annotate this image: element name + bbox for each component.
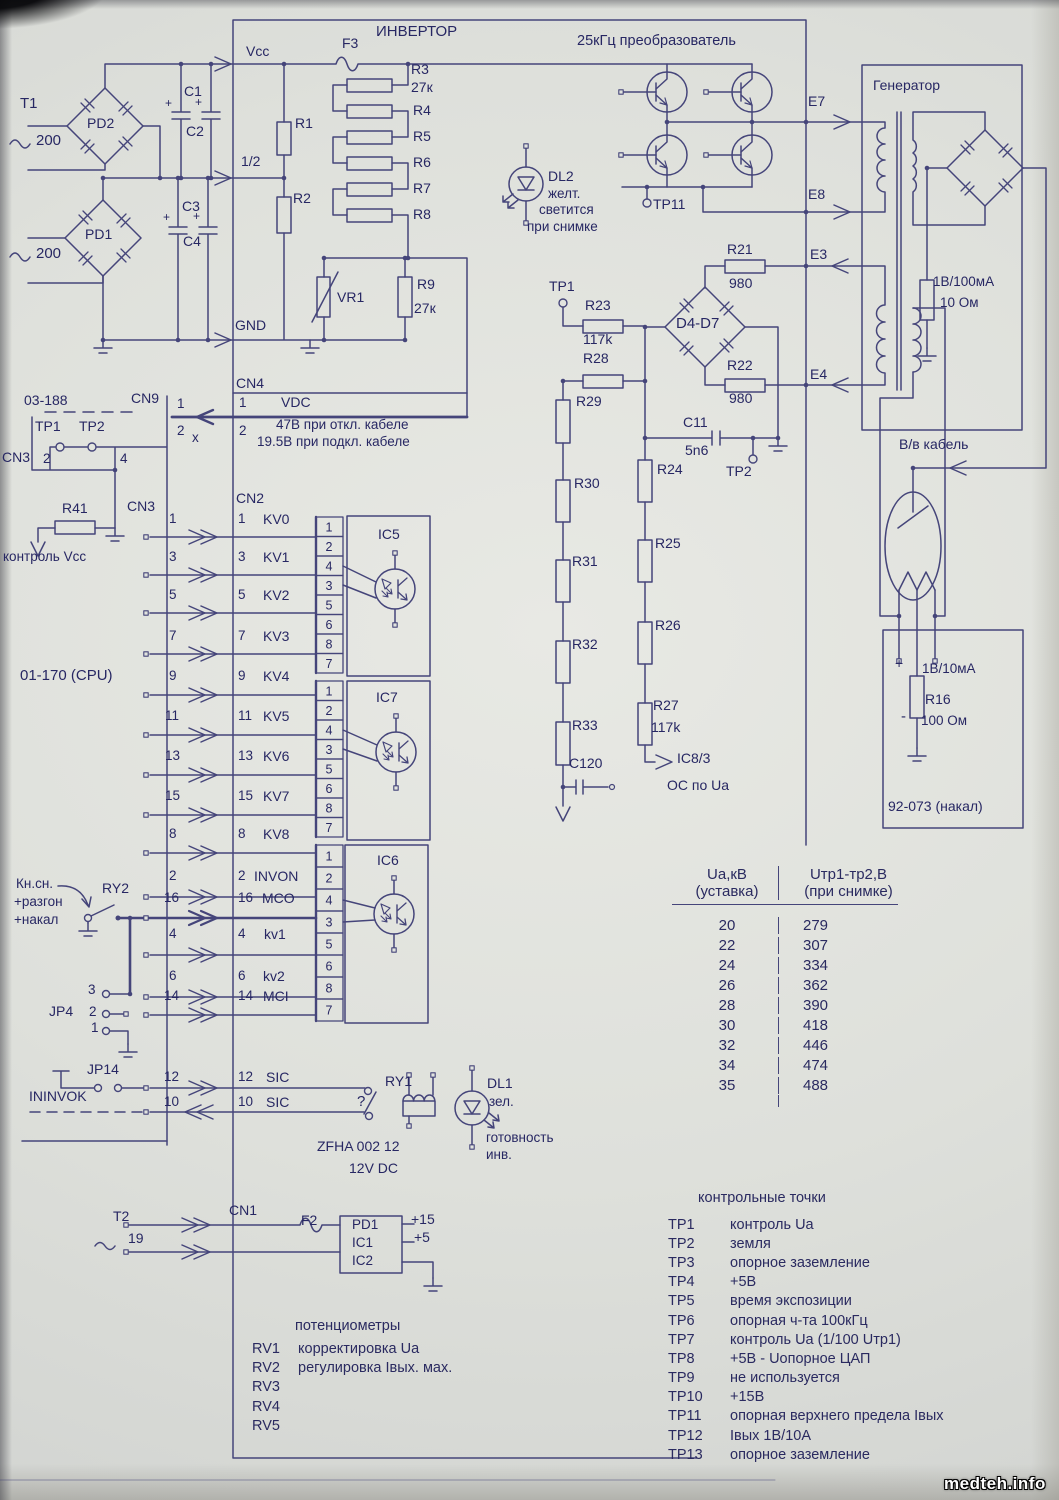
opto-pin-number: 5 [326,598,333,612]
opto-pin-number: 2 [326,540,333,554]
tube-minus: - [901,709,906,724]
signal-kv5: KV5 [263,709,289,723]
utr-col-header: Uтр1-тр2,В(при снимке) [778,866,918,900]
potentiometer-row: RV1корректировка Ua [252,1339,562,1358]
test-point-id: TP6 [668,1313,730,1329]
ry2-label: RY2 [102,881,129,895]
cpu-pin: 13 [165,749,180,763]
board-03-188: 03-188 [24,393,68,407]
potentiometer-id: RV4 [252,1399,298,1415]
opto-pin-number: 6 [326,960,333,974]
potentiometer-desc: корректировка Ua [298,1341,419,1357]
test-point-desc: +5В - Uопорное ЦАП [730,1351,870,1367]
ua-value: 35 [676,1077,778,1094]
dl1-note-1: готовность [486,1131,553,1145]
r29-label: R29 [576,394,602,408]
cn2-pin: 2 [238,869,246,883]
opto-pin-number: 1 [326,684,333,698]
opto-pin-number: 4 [326,723,333,737]
test-point-desc: +15В [730,1389,764,1405]
c120-label: C120 [569,756,602,770]
test-point-row: TP12Iвых 1В/10А [668,1426,1059,1445]
ua-value: 32 [676,1037,778,1054]
psu-ic1: IC1 [352,1236,373,1250]
dl2-label: DL2 [548,169,574,183]
cn3-pin2: 2 [43,452,51,466]
r23-value: 117k [583,332,612,346]
cpu-pin: 12 [164,1070,179,1084]
cn3-label: CN3 [2,450,30,464]
potentiometer-row: RV5 [252,1417,562,1436]
cpu-label: 01-170 (CPU) [20,668,113,683]
r21-label: R21 [727,242,753,256]
test-point-desc: контроль Ua (1/100 Uтр1) [730,1332,901,1348]
utr-value: 418 [778,1017,918,1034]
r27-label: R27 [653,698,679,712]
test-point-row: TP7контроль Ua (1/100 Uтр1) [668,1330,1059,1349]
inverter-title: ИНВЕРТОР [376,24,457,39]
c4-label: C4 [183,234,201,248]
converter-title: 25кГц преобразователь [577,34,736,49]
cn3-pin4: 4 [120,452,128,466]
e4-label: E4 [810,367,827,381]
test-points-title: контрольные точки [698,1190,1059,1206]
cpu-pin: 9 [169,669,177,683]
psu-ic2: IC2 [352,1254,373,1268]
potentiometer-desc: регулировка Iвых. мах. [298,1360,452,1376]
test-point-row: TP6опорная ч-та 100кГц [668,1311,1059,1330]
e7-label: E7 [808,94,825,108]
cn2-pin: 11 [238,709,252,723]
test-point-desc: +5В [730,1274,756,1290]
gen-shunt-value: 1В/100мА [933,275,994,289]
ic6-label: IC6 [377,853,399,867]
r27-value: 117k [651,720,680,734]
test-point-row: TP4+5В [668,1273,1059,1292]
utr-value: 307 [778,937,918,954]
cpu-pin: 5 [169,588,177,602]
ua-table-row: 34474 [676,1055,918,1075]
r41-label: R41 [62,501,88,515]
cn2-pin: 10 [238,1095,253,1109]
opto-pin-number: 5 [326,762,333,776]
potentiometer-id: RV5 [252,1418,298,1434]
e3-label: E3 [810,247,827,261]
ua-value: 28 [676,997,778,1014]
potentiometer-row: RV3 [252,1378,562,1397]
potentiometer-id: RV1 [252,1341,298,1357]
c2-plus: + [195,96,202,108]
test-point-row: TP8+5В - Uопорное ЦАП [668,1349,1059,1368]
cn2-pin: 3 [238,550,246,564]
test-point-id: TP12 [668,1428,730,1444]
opto-pin-number: 8 [326,982,333,996]
ry1-label: RY1 [385,1074,412,1088]
pd1-label: PD1 [85,227,112,241]
tp1-left-label: TP1 [35,419,61,433]
table-rule [672,904,898,905]
ua-table-row: 32446 [676,1035,918,1055]
c4-plus: + [193,210,200,222]
signal-kv8: KV8 [263,827,289,841]
ry1-question: ? [357,1094,365,1109]
potentiometers-legend: потенциометры RV1корректировка UaRV2регу… [252,1318,562,1436]
opto-pin-number: 2 [326,872,333,886]
cn2-pin: 4 [238,927,246,941]
c1-plus: + [165,97,172,109]
relay-voltage: 12V DC [349,1161,398,1175]
dl1-label: DL1 [487,1076,513,1090]
test-point-row: TP1контроль Ua [668,1215,1059,1234]
opto-pin-number: 3 [326,916,333,930]
potentiometers-title: потенциометры [295,1318,562,1334]
t2-label: T2 [113,1209,129,1223]
opto-pin-number: 8 [326,637,333,651]
cpu-pin: 14 [164,989,179,1003]
cpu-pin: 6 [169,969,177,983]
kn-sn-note-2: +разгон [14,895,63,909]
cn9-pin1: 1 [177,397,185,411]
ic8-label: IC8/3 [677,751,710,765]
ua-value: 26 [676,977,778,994]
cpu-pin: 3 [169,550,177,564]
cpu-pin: 15 [165,789,180,803]
test-point-desc: опорная ч-та 100кГц [730,1313,868,1329]
relay-type: ZFHA 002 12 [317,1139,400,1153]
cn4-note-2: 19.5В при подкл. кабеле [257,435,410,449]
utr-value: 390 [778,997,918,1014]
r16-spec: 1В/10мА [922,662,976,676]
test-point-desc: не используется [730,1370,840,1386]
cn2-pin: 5 [238,588,246,602]
jp14-label: JP14 [87,1062,119,1076]
signal-sic-out: SIC [266,1070,289,1084]
cn4-label: CN4 [236,376,264,390]
r1-label: R1 [295,116,313,130]
test-point-desc: опорное заземление [730,1255,870,1271]
cn2-pin: 7 [238,629,246,643]
test-point-desc: опорное заземление [730,1447,870,1463]
pd2-label: PD2 [87,116,114,130]
hv-cable-label: В/в кабель [899,437,968,451]
signal-kv3: KV3 [263,629,289,643]
cn2-pin: 9 [238,669,246,683]
dl2-color: желт. [548,187,580,201]
r4-label: R4 [413,103,431,117]
signal-sic-in: SIC [266,1095,289,1109]
test-point-id: TP11 [668,1408,730,1424]
cn2-pin: 16 [238,891,253,905]
ac3-value: 19 [128,1231,144,1245]
signal-kv2-low: kv2 [263,969,285,983]
cpu-pin: 7 [169,629,177,643]
opto-pin-number: 7 [326,1004,333,1018]
test-point-row: TP2земля [668,1234,1059,1253]
test-point-id: TP5 [668,1293,730,1309]
test-point-id: TP8 [668,1351,730,1367]
opto-pin-number: 3 [326,743,333,757]
utr-value: 474 [778,1057,918,1074]
test-point-id: TP13 [668,1447,730,1463]
test-point-desc: Iвых 1В/10А [730,1428,811,1444]
dl2-note-2: при снимке [527,220,598,234]
dl2-note-1: светится [539,203,594,217]
ua-table-row: 35488 [676,1075,918,1095]
r5-label: R5 [413,129,431,143]
c3-plus: + [163,211,170,223]
signal-invon: INVON [254,869,298,883]
test-point-row: TP3опорное заземление [668,1253,1059,1272]
kontrol-vcc-label: контроль Vcc [3,550,86,564]
test-point-row: TP9не используется [668,1369,1059,1388]
psu-pd1: PD1 [352,1218,378,1232]
opto-pin-number: 2 [326,704,333,718]
test-point-desc: земля [730,1236,771,1252]
test-point-id: TP10 [668,1389,730,1405]
opto-pin-number: 7 [326,821,333,835]
utr-value: 279 [778,917,918,934]
utr-value: 334 [778,957,918,974]
kn-sn-note-1: Кн.сн. [16,877,53,891]
test-point-id: TP2 [668,1236,730,1252]
cn9-nc: x [192,431,199,445]
r31-label: R31 [572,554,598,568]
test-point-desc: время экспозиции [730,1293,852,1309]
cn1-label: CN1 [229,1203,257,1217]
r23-label: R23 [585,298,611,312]
r16-value: 100 Ом [921,714,967,728]
signal-kv1-low: kv1 [264,927,286,941]
cn2-pin: 15 [238,789,253,803]
r21-value: 980 [729,276,752,290]
opto-pin-number: 4 [326,894,333,908]
cn4-pin1: 1 [239,396,247,410]
cpu-pin: 2 [169,869,177,883]
dl1-color: зел. [489,1095,514,1109]
signal-kv6: KV6 [263,749,289,763]
cn2-label: CN2 [236,491,264,505]
ua-table-row: 26362 [676,975,918,995]
ic5-label: IC5 [378,527,400,541]
utr-value: 488 [778,1077,918,1094]
ua-table-row: 22307 [676,935,918,955]
test-points-legend: контрольные точки TP1контроль UaTP2земля… [668,1190,1059,1464]
signal-kv4: KV4 [263,669,289,683]
test-point-id: TP1 [668,1217,730,1233]
psu-p15: +15 [411,1212,435,1226]
opto-pin-number: 1 [326,850,333,864]
ua-table-row: 24334 [676,955,918,975]
ua-value: 34 [676,1057,778,1074]
jp4-pin2: 2 [89,1005,97,1019]
ininvok-label: ININVOK [29,1089,87,1103]
utr-value: 362 [778,977,918,994]
tube-plus: + [895,656,903,670]
schematic-page: 124356871243568712435687 T1200200PD2PD1C… [0,0,1059,1500]
cn4-note-1: 47В при откл. кабеле [276,418,408,432]
opto-pin-number: 7 [326,657,333,671]
r6-label: R6 [413,155,431,169]
ua-value: 24 [676,957,778,974]
cn2-pin: 13 [238,749,253,763]
ic7-label: IC7 [376,690,398,704]
test-point-desc: опорная верхнего предела Iвых [730,1408,944,1424]
cn3b-label: CN3 [127,499,155,513]
utr-value: 446 [778,1037,918,1054]
cpu-pin: 10 [164,1095,179,1109]
cn2-pin: 8 [238,827,246,841]
cpu-pin: 1 [169,512,177,526]
cn9-pin2: 2 [177,424,185,438]
vdc-label: VDC [281,395,311,409]
opto-pin-number: 1 [326,520,333,534]
signal-kv0: KV0 [263,512,289,526]
ua-voltage-table: Ua,кВ(уставка) Uтр1-тр2,В(при снимке) 20… [676,866,918,1107]
cn4-pin2: 2 [239,424,247,438]
signal-mci: MCI [263,989,289,1003]
jp4-label: JP4 [49,1004,73,1018]
test-point-row: TP11опорная верхнего предела Iвых [668,1407,1059,1426]
c11-value: 5n6 [685,443,708,457]
ua-value: 30 [676,1017,778,1034]
kn-sn-note-3: +накал [14,913,58,927]
tp1-mid-label: TP1 [549,279,575,293]
r22-label: R22 [727,358,753,372]
gnd-label: GND [235,318,266,332]
test-point-row: TP10+15В [668,1388,1059,1407]
ua-table-row: 20279 [676,915,918,935]
r30-label: R30 [574,476,600,490]
test-point-id: TP4 [668,1274,730,1290]
r33-label: R33 [572,718,598,732]
r2-label: R2 [293,191,311,205]
potentiometer-id: RV3 [252,1379,298,1395]
cn9-label: CN9 [131,391,159,405]
psu-p5: +5 [414,1230,430,1244]
cpu-pin: 4 [169,927,177,941]
potentiometer-id: RV2 [252,1360,298,1376]
opto-pin-number: 6 [326,782,333,796]
test-point-row: TP5время экспозиции [668,1292,1059,1311]
opto-pin-number: 6 [326,618,333,632]
r8-label: R8 [413,207,431,221]
r26-label: R26 [655,618,681,632]
tp2-left-label: TP2 [79,419,105,433]
signal-mco: MCO [262,891,295,905]
t1-label: T1 [20,96,38,111]
e8-label: E8 [808,187,825,201]
ua-value: 22 [676,937,778,954]
test-point-row: TP13опорное заземление [668,1445,1059,1464]
r3-value: 27к [411,80,433,94]
cn2-pin: 1 [238,512,246,526]
cn2-pin: 6 [238,969,246,983]
ua-col-header: Ua,кВ(уставка) [676,866,778,900]
r9-value: 27к [414,301,436,315]
r7-label: R7 [413,181,431,195]
d4d7-label: D4-D7 [676,316,719,331]
cn2-pin: 14 [238,989,253,1003]
opto-pin-number: 3 [326,579,333,593]
f2-label: F2 [301,1213,317,1227]
potentiometer-row: RV2регулировка Iвых. мах. [252,1358,562,1377]
test-point-desc: контроль Ua [730,1217,814,1233]
signal-kv1: KV1 [263,550,289,564]
jp4-pin1: 1 [91,1021,99,1035]
r32-label: R32 [572,637,598,651]
ac1-value: 200 [36,133,61,148]
r25-label: R25 [655,536,681,550]
ua-table-row: 28390 [676,995,918,1015]
ua-table-row: 30418 [676,1015,918,1035]
half-label: 1/2 [241,154,260,168]
r16-label: R16 [925,692,951,706]
ua-value: 20 [676,917,778,934]
tp11-label: TP11 [653,197,685,211]
f3-label: F3 [342,36,358,50]
r24-label: R24 [657,462,683,476]
vr1-label: VR1 [337,290,364,304]
jp4-pin3: 3 [88,983,96,997]
signal-kv2: KV2 [263,588,289,602]
cpu-pin: 16 [164,891,179,905]
cn2-pin: 12 [238,1070,253,1084]
c11-label: C11 [683,415,708,429]
r28-label: R28 [583,351,609,365]
r22-value: 980 [729,391,752,405]
c2-label: C2 [186,124,204,138]
test-point-id: TP3 [668,1255,730,1271]
opto-pin-number: 5 [326,938,333,952]
gen-shunt-ohm: 10 Ом [940,296,979,310]
signal-kv7: KV7 [263,789,289,803]
dl1-note-2: инв. [486,1148,512,1162]
r3-label: R3 [411,62,429,76]
opto-pin-number: 4 [326,559,333,573]
test-point-id: TP7 [668,1332,730,1348]
test-point-id: TP9 [668,1370,730,1386]
opto-pin-number: 8 [326,801,333,815]
cpu-pin: 11 [165,709,179,723]
r9-label: R9 [417,277,435,291]
ac2-value: 200 [36,246,61,261]
vcc-label: Vcc [246,44,269,58]
board-92-073: 92-073 (накал) [888,799,983,813]
generator-title: Генератор [873,78,940,92]
watermark: medteh.info [944,1474,1046,1494]
os-ua-label: ОС по Ua [667,778,729,792]
cpu-pin: 8 [169,827,177,841]
potentiometer-row: RV4 [252,1397,562,1416]
tp2-mid-label: TP2 [726,464,752,478]
